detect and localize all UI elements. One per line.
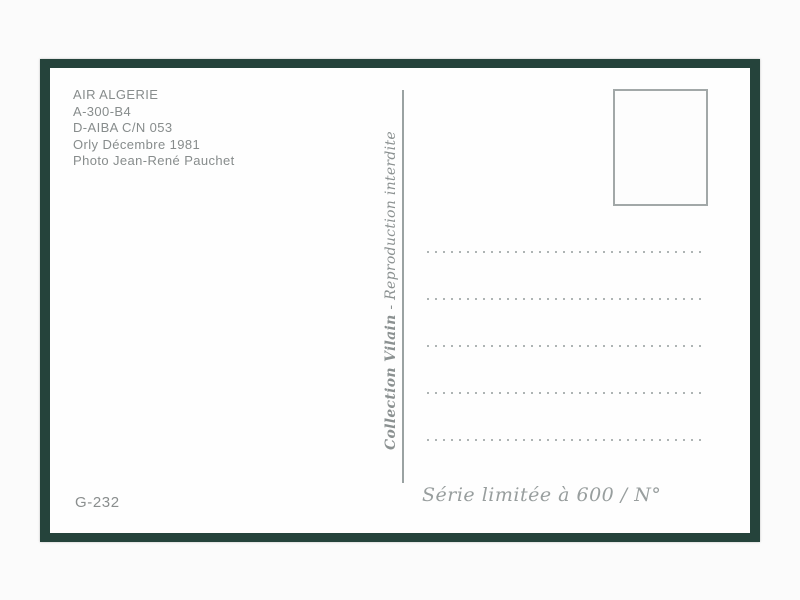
photo-credit-block: AIR ALGERIE A-300-B4 D-AIBA C/N 053 Orly… bbox=[73, 87, 235, 170]
registration-number: D-AIBA C/N 053 bbox=[73, 120, 235, 137]
location-date: Orly Décembre 1981 bbox=[73, 137, 235, 154]
postcard-frame: AIR ALGERIE A-300-B4 D-AIBA C/N 053 Orly… bbox=[40, 59, 760, 542]
airline-name: AIR ALGERIE bbox=[73, 87, 235, 104]
address-dotted-line bbox=[427, 345, 705, 347]
limited-series-note: Série limitée à 600 / N° bbox=[422, 484, 661, 506]
publisher-credit-vertical: Collection Vilain - Reproduction interdi… bbox=[383, 170, 403, 450]
catalog-ref-number: G-232 bbox=[75, 494, 120, 511]
photographer-credit: Photo Jean-René Pauchet bbox=[73, 153, 235, 170]
postcard-back: AIR ALGERIE A-300-B4 D-AIBA C/N 053 Orly… bbox=[50, 68, 750, 533]
reproduction-notice: Reproduction interdite bbox=[383, 131, 399, 300]
address-dotted-line bbox=[427, 298, 705, 300]
stamp-box bbox=[613, 89, 708, 206]
aircraft-type: A-300-B4 bbox=[73, 104, 235, 121]
address-dotted-line bbox=[427, 439, 705, 441]
address-dotted-line bbox=[427, 392, 705, 394]
publisher-separator: - bbox=[383, 300, 399, 315]
address-dotted-line bbox=[427, 251, 705, 253]
publisher-name: Collection Vilain bbox=[383, 314, 399, 450]
postcard-scan: AIR ALGERIE A-300-B4 D-AIBA C/N 053 Orly… bbox=[0, 0, 800, 600]
